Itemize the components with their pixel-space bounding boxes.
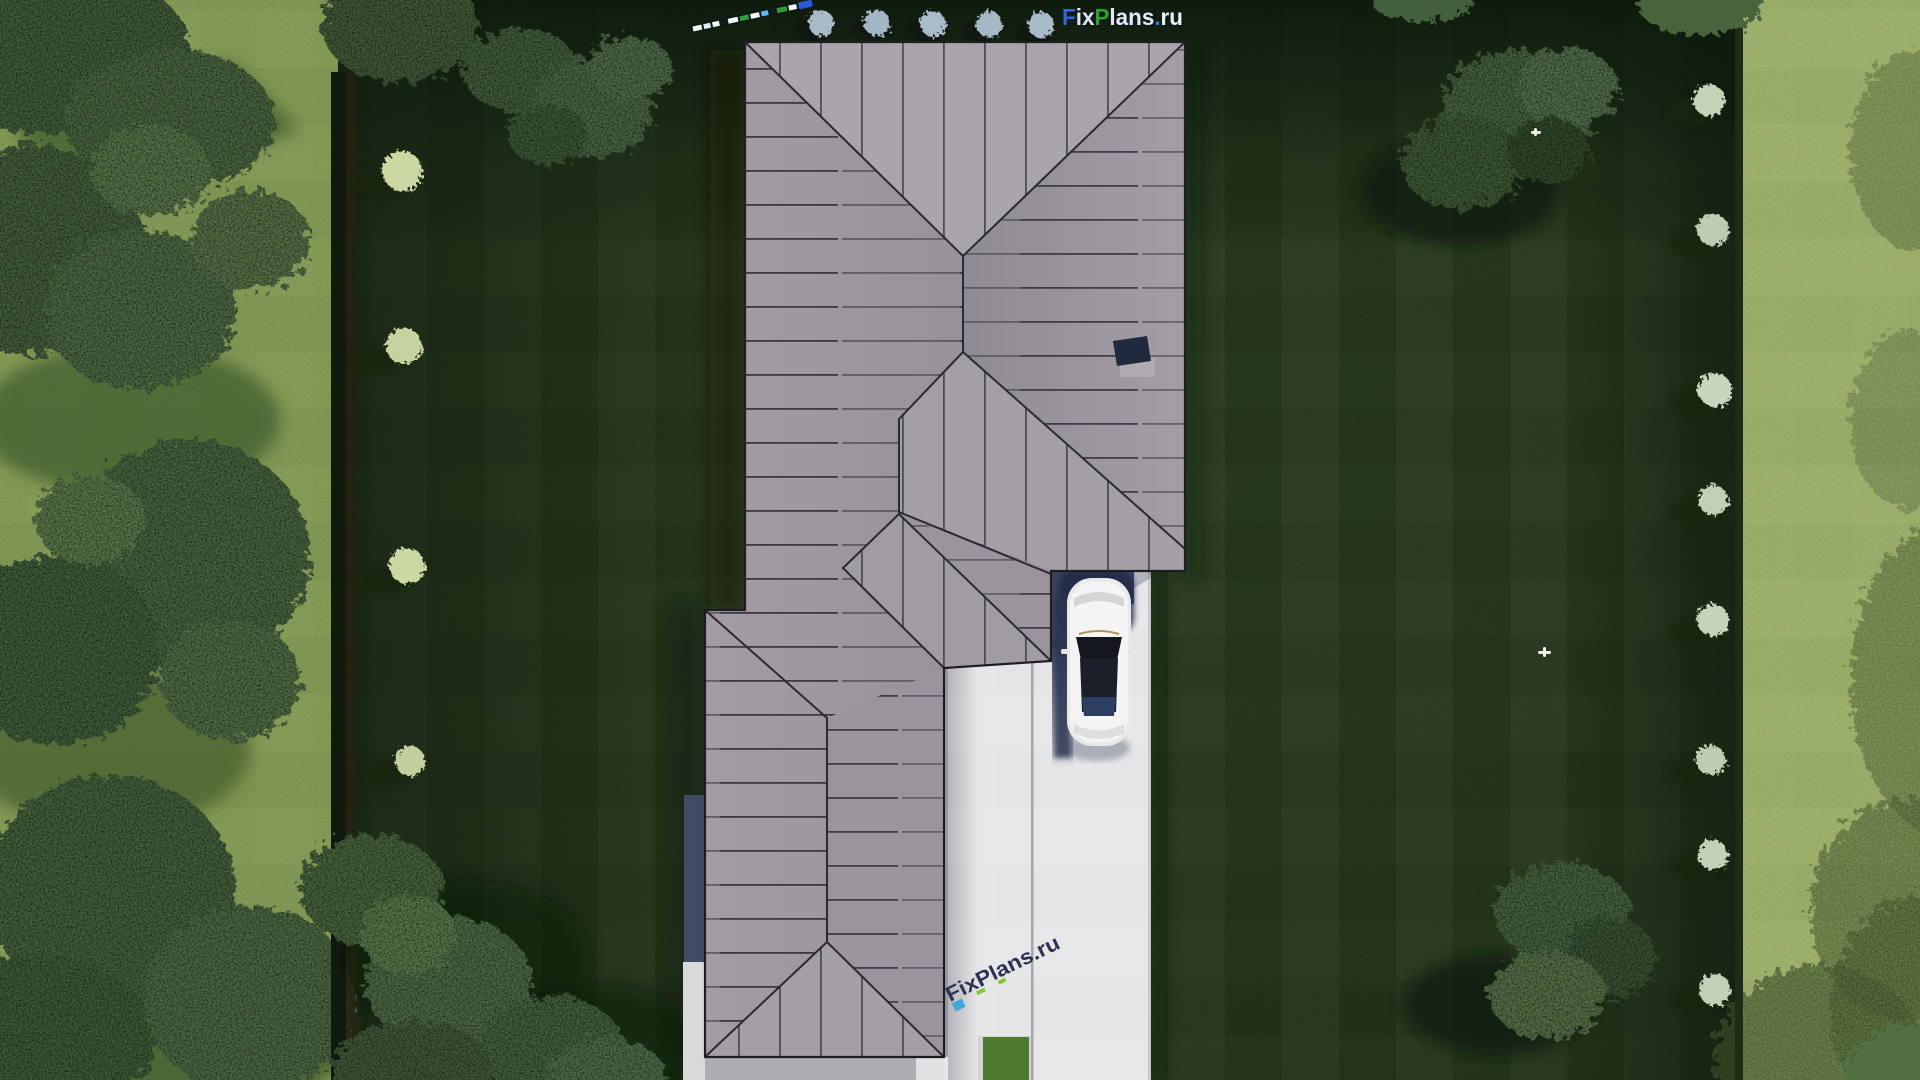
svg-text:FixPlans.ru: FixPlans.ru xyxy=(1062,4,1183,30)
